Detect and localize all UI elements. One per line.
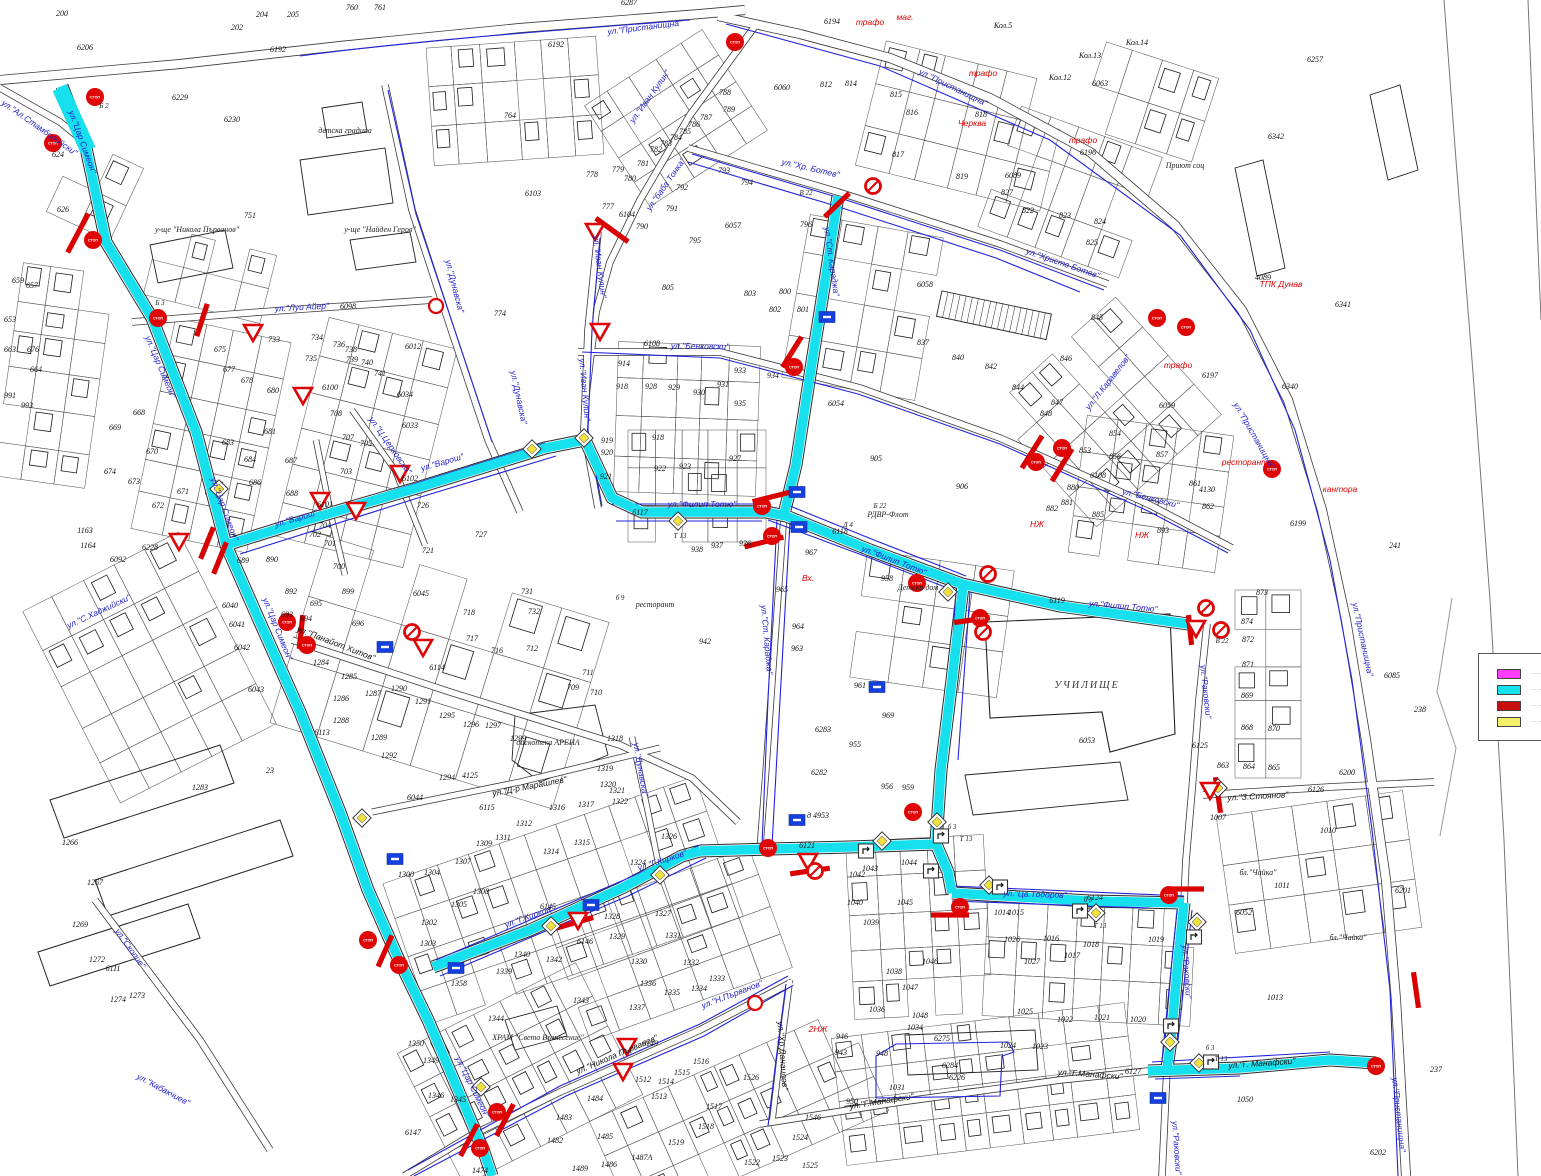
school-label: УЧИЛИЩЕ: [1054, 680, 1119, 691]
yield-sign-icon: [170, 534, 188, 550]
parcel-number: 6098: [340, 302, 356, 311]
parcel-number: 4130: [1199, 485, 1215, 494]
parcel-number: 802: [769, 305, 781, 314]
legend-swatch-cyan: [1497, 685, 1521, 695]
stop-sign-icon: СТОП: [471, 1139, 489, 1157]
parcel-number: 848: [1040, 409, 1052, 418]
no-entry-sign-icon: [1199, 601, 1214, 616]
parcel-number: 801: [797, 305, 809, 314]
parcel-number: 1303: [420, 939, 436, 948]
parcel-number: 1513: [651, 1092, 667, 1101]
svg-text:СТОП: СТОП: [282, 620, 292, 624]
poi-label-red: кантора: [1323, 484, 1358, 494]
parcel-number: 1526: [743, 1073, 759, 1082]
parcel-number: 677: [223, 365, 236, 374]
parcel-number: 991: [4, 391, 16, 400]
street-end-marker-icon: [429, 299, 443, 313]
parcel-number: 1025: [1017, 1007, 1033, 1016]
parcel-number: 6042: [234, 643, 250, 652]
parcel-number: 741: [374, 369, 386, 378]
parcel-number: 6342: [1268, 132, 1284, 141]
parcel-number: 1039: [863, 918, 879, 927]
parcel-number: 6085: [1384, 671, 1400, 680]
parcel-number: 1340: [514, 950, 530, 959]
parcel-number: 874: [1241, 617, 1253, 626]
svg-text:СТОП: СТОП: [763, 846, 773, 850]
parcel-number: 764: [504, 111, 516, 120]
parcel-number: 892: [285, 587, 297, 596]
parcel-number: 626: [57, 205, 69, 214]
stop-sign-icon: СТОП: [1148, 309, 1166, 327]
parcel-number: 681: [264, 427, 276, 436]
parcel-number: 696: [352, 619, 364, 628]
parcel-number: 1512: [635, 1075, 651, 1084]
parcel-number: 6102: [402, 474, 418, 483]
parcel-number: 793: [718, 166, 730, 175]
parcel-number: 862: [1202, 502, 1214, 511]
parcel-number: 204: [256, 10, 268, 19]
sign-annotation: В 22: [1215, 637, 1229, 645]
parcel-number: 967: [805, 548, 818, 557]
poi-label: бл."Чайка": [1329, 933, 1367, 942]
parcel-number: 1474: [472, 1166, 488, 1175]
parcel-number: 1017: [1064, 951, 1081, 960]
parcel-number: 6202: [1370, 1148, 1386, 1157]
parcel-number: 1321: [609, 786, 625, 795]
parcel-number: 1031: [889, 1083, 905, 1092]
info-sign-icon: [791, 522, 807, 533]
parcel-number: 751: [244, 211, 256, 220]
parcel-number: 790: [636, 222, 648, 231]
parcel-number: 6200: [1339, 768, 1355, 777]
parcel-number: 1023: [1032, 1042, 1048, 1051]
parcel-number: 6287: [621, 0, 638, 7]
parcel-number: 6257: [1307, 55, 1324, 64]
parcel-number: 676: [27, 345, 39, 354]
parcel-number: 6284: [942, 1061, 958, 1070]
parcel-number: 774: [494, 309, 506, 318]
parcel-number: 942: [699, 637, 711, 646]
svg-text:СТОП: СТОП: [789, 365, 799, 369]
parcel-number: 1312: [516, 819, 532, 828]
parcel-number: 824: [1094, 217, 1106, 226]
street-name-label: ул."Филип Тотю": [667, 499, 737, 509]
parcel-number: 935: [734, 399, 746, 408]
poi-label-red: трафо: [969, 68, 998, 78]
svg-text:СТОП: СТОП: [394, 963, 404, 967]
parcel-number: 6103: [525, 189, 541, 198]
parcel-number: 914: [618, 359, 630, 368]
street-name-label: ул."Дунавска": [508, 369, 529, 426]
parcel-number: 1273: [129, 991, 145, 1000]
parcel-number: 1524: [792, 1133, 808, 1142]
parcel-number: 6034: [397, 390, 413, 399]
parcel-number: 959: [902, 783, 914, 792]
parcel-number: 1286: [333, 694, 349, 703]
sign-annotation: Б 22: [873, 502, 887, 510]
poi-label: ресторант: [635, 600, 675, 609]
no-entry-sign-icon: [866, 179, 881, 194]
info-sign-icon: [869, 682, 885, 693]
parcel-number: Кол.5: [993, 21, 1012, 30]
parcel-number: 796: [800, 220, 812, 229]
parcel-number: 700: [333, 562, 345, 571]
parcel-number: 624: [52, 150, 64, 159]
parcel-number: 1326: [661, 832, 677, 841]
parcel-number: 865: [1268, 763, 1280, 772]
parcel-number: 1164: [80, 541, 95, 550]
parcel-number: 6108: [1090, 471, 1106, 480]
parcel-number: 1344: [488, 1014, 504, 1023]
priority-road-sign-icon: [353, 809, 371, 827]
poi-label: детска градина: [318, 126, 372, 135]
parcel-number: 920: [601, 448, 613, 457]
parcel-number: 918: [652, 433, 664, 442]
parcel-number: 1308: [473, 887, 489, 896]
stop-sign-icon: СТОП: [359, 931, 377, 949]
parcel-number: 1285: [341, 672, 357, 681]
parcel-number: 659: [12, 276, 24, 285]
poi-label-red: ТПК Дунав: [1260, 279, 1303, 289]
parcel-number: 1307: [455, 857, 472, 866]
parcel-number: 6092: [110, 555, 126, 564]
parcel-number: 237: [1430, 1065, 1443, 1074]
parcel-number: 899: [342, 587, 354, 596]
parcel-number: 6127: [1125, 1067, 1142, 1076]
poi-label-red: 2НЖ: [808, 1024, 829, 1034]
parcel-number: 727: [475, 530, 488, 539]
parcel-number: 6108: [644, 339, 660, 348]
parcel-number: 893: [1157, 526, 1169, 535]
parcel-number: 969: [882, 711, 894, 720]
parcel-number: 1305: [451, 900, 467, 909]
parcel-number: 6282: [811, 768, 827, 777]
stop-sign-icon: СТОП: [1177, 318, 1195, 336]
parcel-number: 1342: [546, 955, 562, 964]
parcel-number: 1289: [371, 733, 387, 742]
parcel-number: 731: [521, 587, 533, 596]
svg-text:СТОП: СТОП: [302, 643, 312, 647]
parcel-number: 6052: [1236, 908, 1252, 917]
parcel-number: 663: [4, 345, 16, 354]
no-entry-sign-icon: [405, 625, 420, 640]
svg-text:СТОП: СТОП: [757, 504, 767, 508]
city-map-canvas[interactable]: СТОПСТОПСТОПСТОПСТОПСТОПСТОПСТОПСТОПСТОП…: [0, 0, 1541, 1176]
parcel-number: 1345: [450, 1095, 466, 1104]
svg-text:СТОП: СТОП: [1371, 1064, 1381, 1068]
parcel-number: 1291: [415, 697, 431, 706]
svg-text:СТОП: СТОП: [1164, 893, 1174, 897]
svg-text:СТОП: СТОП: [955, 905, 965, 909]
stop-sign-icon: СТОП: [1367, 1057, 1385, 1075]
sign-annotation: б 3: [948, 823, 957, 831]
street-end-marker-icon: [748, 996, 762, 1010]
map-labels-layer: 2002022042056206619262296230751624626760…: [0, 0, 1443, 1176]
parcel-number: 934: [767, 371, 779, 380]
parcel-number: 845: [1091, 313, 1103, 322]
parcel-number: 1519: [668, 1138, 684, 1147]
parcel-number: 673: [128, 477, 140, 486]
parcel-number: 6033: [402, 421, 418, 430]
svg-text:СТОП: СТОП: [767, 534, 777, 538]
parcel-number: 1047: [902, 983, 919, 992]
parcel-number: 6104: [619, 210, 635, 219]
no-entry-sign-icon: [808, 864, 823, 879]
parcel-number: 678: [241, 376, 253, 385]
crosswalk-sign-icon: [1187, 930, 1202, 944]
poi-label: Детски дом: [897, 583, 938, 592]
parcel-number: 686: [249, 478, 261, 487]
street-name-label: ул."З.Стоянов": [1226, 789, 1289, 802]
street-name-label: ул."Иван Кулин": [627, 67, 673, 125]
parcel-number: д 4953: [807, 811, 829, 820]
parcel-number: 675: [214, 345, 226, 354]
svg-text:СТОП: СТОП: [1057, 446, 1067, 450]
parcel-number: 1021: [1094, 1013, 1110, 1022]
info-sign-icon: [583, 900, 599, 911]
parcel-number: 670: [146, 447, 158, 456]
parcel-number: 6063: [1092, 79, 1108, 88]
parcel-number: 693: [281, 610, 293, 619]
no-entry-sign-icon: [976, 625, 991, 640]
stop-sign-icon: СТОП: [904, 803, 922, 821]
stop-sign-icon: СТОП: [1027, 453, 1045, 471]
parcel-number: 1358: [451, 979, 467, 988]
parcel-number: 1018: [1083, 940, 1099, 949]
parcel-number: 1349: [423, 1056, 439, 1065]
parcel-number: 6054: [828, 399, 844, 408]
parcel-number: 1272: [89, 955, 105, 964]
svg-text:СТОП: СТОП: [363, 938, 373, 942]
parcel-number: 1332: [683, 958, 699, 967]
parcel-number: 844: [1012, 383, 1024, 392]
parcel-number: 6226: [949, 1073, 965, 1082]
street-name-label: ул."Л.Каравелов": [1082, 352, 1133, 413]
poi-label-red: ресторант: [1221, 457, 1269, 467]
parcel-number: 837: [917, 338, 930, 347]
info-sign-icon: [789, 815, 805, 826]
parcel-number: 6101: [317, 500, 333, 509]
parcel-number: 6126: [1308, 785, 1324, 794]
parcel-number: 760: [346, 3, 358, 12]
street-name-label: ул."Цар Симеон": [66, 108, 99, 176]
legend-item-route-magenta: ·········: [1485, 666, 1541, 682]
parcel-number: 6043: [248, 685, 264, 694]
svg-text:СТОП: СТОП: [1181, 325, 1191, 329]
parcel-number: 814: [845, 79, 857, 88]
svg-text:СТОП: СТОП: [475, 1146, 485, 1150]
crosswalk-sign-icon: [934, 829, 949, 843]
parcel-number: 1284: [313, 658, 329, 667]
parcel-number: 736: [333, 340, 345, 349]
parcel-number: 1327: [655, 909, 672, 918]
parcel-number: 671: [177, 487, 189, 496]
stop-sign-icon: СТОП: [1160, 886, 1178, 904]
parcel-number: 1269: [72, 920, 88, 929]
parcel-number: 241: [1389, 541, 1401, 550]
sign-annotation: В 22: [799, 189, 813, 197]
parcel-number: 1295: [439, 711, 455, 720]
no-entry-sign-icon: [981, 567, 996, 582]
stop-sign-icon: СТОП: [1053, 439, 1071, 457]
parcel-number: 733: [268, 335, 280, 344]
parcel-number: 918: [616, 382, 628, 391]
parcel-number: 668: [133, 408, 145, 417]
parcel-number: 6196: [1080, 148, 1096, 157]
parcel-number: 1038: [886, 967, 902, 976]
parcel-number: 1319: [597, 764, 613, 773]
parcel-number: 782: [650, 145, 662, 154]
parcel-number: 701: [324, 539, 336, 548]
parcel-number: 1019: [1148, 935, 1164, 944]
crosswalk-sign-icon: [1164, 1019, 1179, 1033]
parcel-number: 1484: [587, 1094, 603, 1103]
parcel-number: 1034: [907, 1023, 923, 1032]
parcel-number: 905: [870, 454, 882, 463]
parcel-number: 704: [319, 521, 331, 530]
legend-item-route-yellow: ·· ·· ··: [1485, 714, 1541, 730]
parcel-number: 721: [422, 546, 434, 555]
parcel-number: 805: [662, 283, 674, 292]
parcel-number: 794: [741, 178, 753, 187]
parcel-number: 1522: [744, 1158, 760, 1167]
yield-sign-icon: [414, 640, 432, 656]
parcel-number: 1546: [805, 1113, 821, 1122]
parcel-number: 791: [666, 204, 678, 213]
parcel-number: 1046: [922, 957, 938, 966]
parcel-number: 6230: [224, 115, 240, 124]
parcel-number: 735: [305, 354, 317, 363]
parcel-number: 6125: [1192, 741, 1208, 750]
parcel-number: 1328: [604, 912, 620, 921]
parcel-number: 919: [601, 436, 613, 445]
parcel-number: 1267: [87, 878, 104, 887]
parcel-number: 4125: [462, 771, 478, 780]
parcel-number: 1314: [543, 847, 559, 856]
parcel-number: 781: [637, 159, 649, 168]
parcel-number: 1290: [391, 684, 407, 693]
parcel-number: 871: [1242, 660, 1254, 669]
parcel-number: 864: [1243, 762, 1255, 771]
parcel-number: 1330: [631, 957, 647, 966]
parcel-number: 1294: [439, 773, 455, 782]
parcel-number: 1026: [1004, 935, 1020, 944]
parcel-number: 788: [719, 88, 731, 97]
parcel-number: 943: [835, 1048, 847, 1057]
parcel-number: 6059: [1159, 401, 1175, 410]
parcel-number: 958: [881, 574, 893, 583]
parcel-number: 869: [1241, 691, 1253, 700]
parcel-number: 847: [1051, 398, 1064, 407]
parcel-number: 1339: [496, 967, 512, 976]
parcel-number: 6058: [917, 280, 933, 289]
parcel-number: 6115: [479, 803, 494, 812]
parcel-number: 1045: [897, 898, 913, 907]
parcel-number: 6146: [577, 937, 593, 946]
parcel-number: 712: [526, 644, 538, 653]
parcel-number: 937: [711, 541, 724, 550]
sign-annotation: б 3: [1084, 896, 1093, 904]
parcel-number: 780: [624, 174, 636, 183]
parcel-number: 1013: [1267, 993, 1283, 1002]
parcel-number: 1011: [1274, 881, 1289, 890]
parcel-number: 718: [463, 608, 475, 617]
parcel-number: 931: [717, 380, 729, 389]
parcel-number: 965: [776, 585, 788, 594]
parcel-number: 6117: [632, 508, 648, 517]
parcel-number: 1050: [1237, 1095, 1253, 1104]
poi-label-red: НЖ: [1135, 530, 1150, 540]
parcel-number: 1274: [110, 995, 126, 1004]
street-name-label: ул."Раковски": [1180, 944, 1194, 1000]
svg-text:СТОП: СТОП: [730, 40, 740, 44]
legend-box: · ···· ········· ·· ····· ·· ····· ·· ··…: [1478, 653, 1541, 741]
parcel-number: 674: [104, 467, 116, 476]
parcel-number: 882: [1046, 504, 1058, 513]
parcel-number: 6199: [1290, 519, 1306, 528]
road-closure-bar-icon: [65, 212, 90, 253]
parcel-number: 1514: [658, 1077, 674, 1086]
parcel-number: 948: [876, 1049, 888, 1058]
stop-sign-icon: СТОП: [785, 358, 803, 376]
parcel-number: 238: [1414, 705, 1426, 714]
parcel-number: 842: [985, 362, 997, 371]
parcel-number: 657: [26, 281, 39, 290]
parcel-number: 6206: [77, 43, 93, 52]
parcel-number: 827: [1001, 188, 1014, 197]
parcel-number: 1525: [802, 1161, 818, 1170]
parcel-number: 890: [266, 555, 278, 564]
parcel-number: 1304: [424, 868, 440, 877]
parcel-number: 868: [1241, 723, 1253, 732]
parcel-number: 694: [300, 614, 312, 623]
parcel-number: 964: [792, 622, 804, 631]
parcel-number: 6192: [270, 45, 286, 54]
info-sign-icon: [1150, 1093, 1166, 1104]
parcel-number: 1489: [572, 1164, 588, 1173]
parcel-number: 1487А: [632, 1153, 653, 1162]
parcel-number: 695: [310, 599, 322, 608]
parcel-number: 938: [691, 545, 703, 554]
parcel-number: 815: [890, 90, 902, 99]
parcel-number: 1302: [421, 918, 437, 927]
parcel-number: 800: [779, 287, 791, 296]
parcel-number: 739: [346, 355, 358, 364]
parcel-number: 1329: [609, 932, 625, 941]
parcel-number: 680: [267, 386, 279, 395]
stop-sign-icon: СТОП: [149, 309, 167, 327]
parcel-number: 930: [693, 388, 705, 397]
parcel-number: 822: [1022, 206, 1034, 215]
poi-label-red: Черква: [958, 118, 986, 128]
parcel-number: 1350: [408, 1039, 424, 1048]
stop-sign-icon: СТОП: [84, 231, 102, 249]
parcel-number: 707: [342, 433, 355, 442]
crosswalk-sign-icon: [1073, 904, 1088, 918]
parcel-number: 200: [56, 9, 68, 18]
parcel-number: 1311: [495, 833, 510, 842]
parcel-number: 202: [231, 23, 243, 32]
sign-annotation: Б 3: [154, 299, 165, 307]
parcel-number: 6111: [106, 964, 121, 973]
parcel-number: 711: [582, 668, 593, 677]
parcel-number: 1048: [912, 1011, 928, 1020]
parcel-number: 6229: [172, 93, 188, 102]
parcel-number: 777: [602, 202, 615, 211]
parcel-number: 923: [679, 462, 691, 471]
parcel-number: 6192: [548, 40, 564, 49]
parcel-number: 873: [1256, 588, 1268, 597]
